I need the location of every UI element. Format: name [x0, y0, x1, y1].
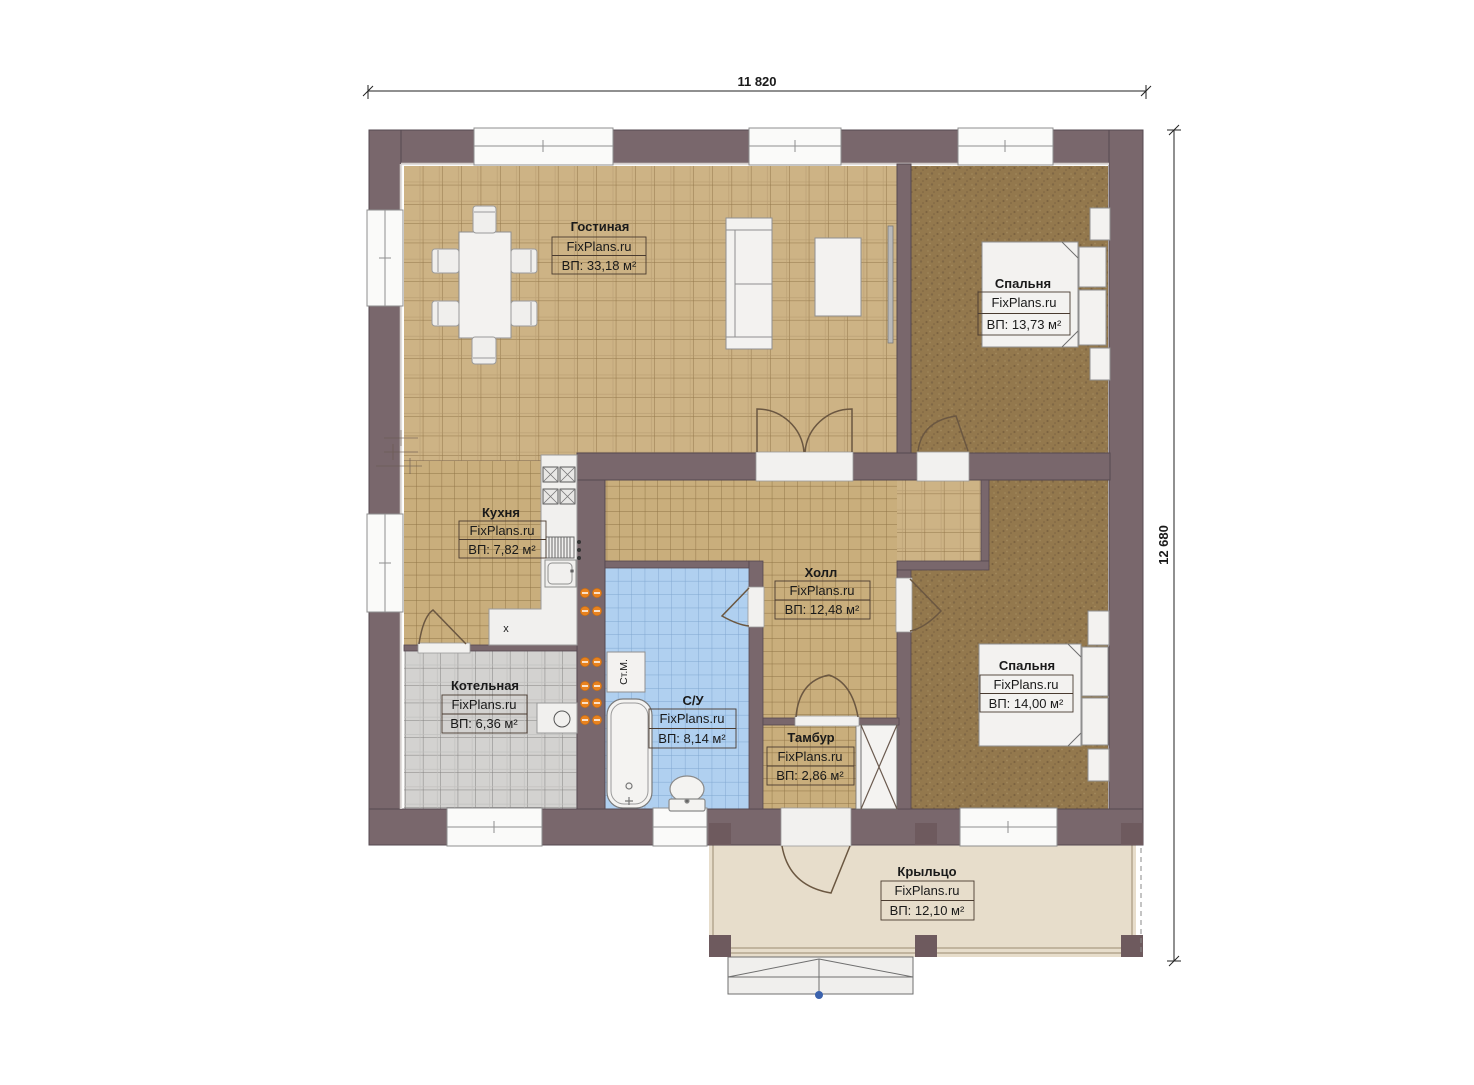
- svg-text:FixPlans.ru: FixPlans.ru: [993, 677, 1058, 692]
- svg-text:11 820: 11 820: [737, 74, 776, 89]
- svg-text:Холл: Холл: [805, 565, 838, 580]
- svg-text:ВП: 6,36 м²: ВП: 6,36 м²: [450, 716, 518, 731]
- svg-text:ВП: 13,73 м²: ВП: 13,73 м²: [987, 317, 1062, 332]
- svg-text:Спальня: Спальня: [999, 658, 1055, 673]
- svg-text:Кухня: Кухня: [482, 505, 520, 520]
- svg-text:FixPlans.ru: FixPlans.ru: [789, 583, 854, 598]
- svg-text:С/У: С/У: [682, 693, 704, 708]
- svg-text:12 680: 12 680: [1156, 525, 1171, 565]
- svg-text:Спальня: Спальня: [995, 276, 1051, 291]
- svg-text:ВП: 12,48 м²: ВП: 12,48 м²: [785, 602, 860, 617]
- svg-text:Крыльцо: Крыльцо: [897, 864, 956, 879]
- svg-text:Тамбур: Тамбур: [787, 730, 834, 745]
- svg-text:FixPlans.ru: FixPlans.ru: [894, 883, 959, 898]
- svg-text:Котельная: Котельная: [451, 678, 519, 693]
- svg-text:FixPlans.ru: FixPlans.ru: [991, 295, 1056, 310]
- svg-text:ВП: 33,18 м²: ВП: 33,18 м²: [562, 258, 637, 273]
- svg-text:ВП: 2,86 м²: ВП: 2,86 м²: [776, 768, 844, 783]
- svg-text:Ст.М.: Ст.М.: [618, 659, 630, 685]
- svg-text:x: x: [503, 623, 509, 635]
- svg-text:ВП: 8,14 м²: ВП: 8,14 м²: [658, 731, 726, 746]
- svg-text:ВП: 7,82 м²: ВП: 7,82 м²: [468, 542, 536, 557]
- svg-text:FixPlans.ru: FixPlans.ru: [469, 523, 534, 538]
- svg-text:FixPlans.ru: FixPlans.ru: [659, 711, 724, 726]
- svg-text:FixPlans.ru: FixPlans.ru: [777, 749, 842, 764]
- svg-text:ВП: 12,10 м²: ВП: 12,10 м²: [890, 903, 965, 918]
- svg-text:FixPlans.ru: FixPlans.ru: [451, 697, 516, 712]
- svg-text:FixPlans.ru: FixPlans.ru: [566, 239, 631, 254]
- svg-text:ВП: 14,00 м²: ВП: 14,00 м²: [989, 696, 1064, 711]
- svg-text:Гостиная: Гостиная: [571, 219, 630, 234]
